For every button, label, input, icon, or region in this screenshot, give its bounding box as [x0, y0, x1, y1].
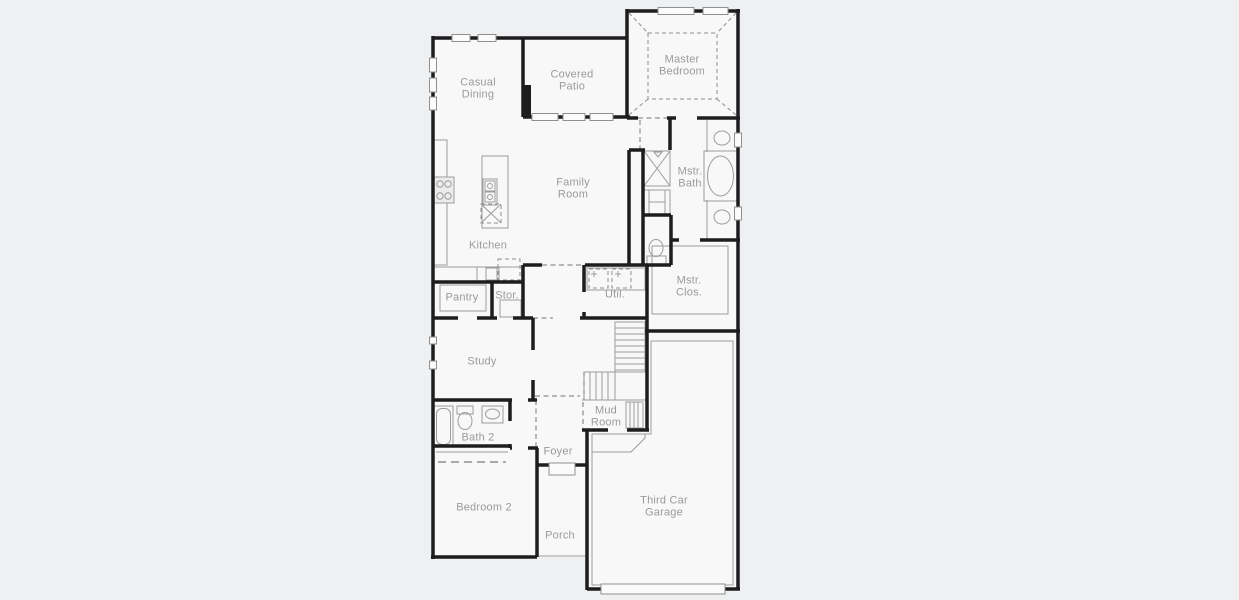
front-door — [549, 463, 575, 475]
wall-jog — [523, 85, 531, 118]
window — [430, 97, 437, 110]
window — [703, 8, 728, 15]
floor-plan-drawing — [0, 0, 1239, 600]
window — [430, 361, 437, 369]
window — [430, 337, 437, 344]
window — [658, 8, 694, 15]
window — [430, 58, 437, 72]
window — [452, 35, 470, 42]
window — [735, 133, 742, 147]
cooktop — [433, 177, 454, 203]
window — [430, 78, 437, 92]
window — [590, 114, 613, 121]
floor-plan: Casual Dining Covered Patio Master Bedro… — [0, 0, 1239, 600]
window — [735, 207, 742, 220]
garage-door — [601, 584, 725, 594]
window — [532, 114, 558, 121]
window — [478, 35, 496, 42]
window — [563, 114, 585, 121]
